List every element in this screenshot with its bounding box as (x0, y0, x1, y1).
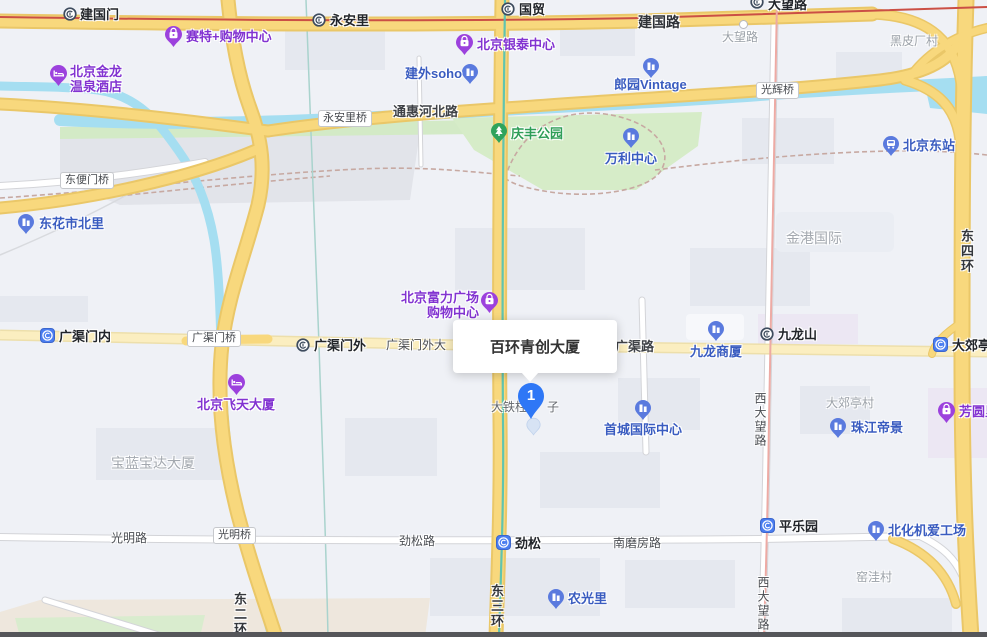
poi-jiulongshangsha[interactable]: 九龙商厦 (690, 344, 742, 359)
marker-number: 1 (515, 387, 547, 404)
result-tooltip[interactable]: 百环青创大厦 (453, 320, 617, 373)
poi-shoucheng[interactable]: 首城国际中心 (604, 422, 682, 437)
poi-beijingdong[interactable]: 北京东站 (903, 138, 955, 153)
area-heipichangcun: 黑皮厂村 (890, 34, 938, 49)
road-guangqumenwai-st: 广渠门外大 (386, 338, 446, 353)
station-dajiaoting[interactable]: 大郊亭 (952, 338, 987, 353)
bridge-guangmingqiao: 光明桥 (213, 527, 256, 544)
metro-logo-icon[interactable] (501, 2, 515, 21)
tooltip-arrow (521, 372, 539, 382)
shopping-pin-icon[interactable] (937, 401, 956, 429)
park-pin-icon[interactable] (490, 122, 508, 149)
road-xidawanglu-lower: 西大望路 (755, 576, 770, 632)
shopping-pin-icon[interactable] (455, 33, 474, 61)
metro-logo-icon[interactable] (760, 327, 774, 346)
poi-beihuaji[interactable]: 北化机爱工场 (888, 523, 966, 538)
poi-jinlong-line1[interactable]: 北京金龙 (70, 64, 122, 79)
map-canvas[interactable]: 建国门 永安里 国贸 大望路 广渠门外 九龙山 广渠门内 劲松 平乐园 大郊亭 … (0, 0, 987, 637)
metro-logo-icon[interactable] (63, 7, 77, 26)
tooltip-title: 百环青创大厦 (490, 336, 580, 357)
area-dawanglu-road: 大望路 (722, 30, 758, 45)
building-pin-icon[interactable] (829, 417, 847, 444)
metro-square-icon[interactable] (933, 337, 948, 357)
poi-qingfeng[interactable]: 庆丰公园 (511, 126, 563, 141)
shopping-pin-icon[interactable] (164, 25, 183, 53)
station-jiulongshan[interactable]: 九龙山 (778, 327, 817, 342)
road-dongerhuan: 东二环 (232, 592, 247, 637)
poi-feitian[interactable]: 北京飞天大厦 (197, 397, 275, 412)
station-guangqumennei[interactable]: 广渠门内 (59, 329, 111, 344)
shopping-pin-icon[interactable] (480, 291, 499, 319)
station-jianguomen[interactable]: 建国门 (80, 7, 119, 22)
poi-zhujiang[interactable]: 珠江帝景 (851, 420, 903, 435)
poi-jianwaisoho[interactable]: 建外soho (405, 66, 462, 81)
road-dongsanhuan: 东三环 (489, 584, 504, 629)
metro-logo-icon[interactable] (750, 0, 764, 14)
building-pin-icon[interactable] (707, 320, 725, 347)
poi-yintai[interactable]: 北京银泰中心 (477, 37, 555, 52)
building-pin-icon[interactable] (461, 63, 479, 90)
area-dajiaotingcun: 大郊亭村 (826, 396, 874, 411)
road-jianguolu: 建国路 (638, 15, 680, 30)
metro-square-icon[interactable] (496, 535, 511, 555)
bridge-guanghuiqiao: 光辉桥 (756, 82, 799, 99)
station-jinsong[interactable]: 劲松 (515, 536, 541, 551)
road-dongsihuan: 东四环 (959, 229, 974, 274)
road-jinsonglu: 劲松路 (399, 534, 435, 549)
road-xidawanglu-upper: 西大望路 (752, 392, 767, 448)
building-pin-icon[interactable] (622, 127, 640, 154)
bridge-dongbianmenqiao: 东便门桥 (60, 172, 114, 189)
station-yonganli[interactable]: 永安里 (330, 13, 369, 28)
station-guomao[interactable]: 国贸 (519, 2, 545, 17)
road-guangqulu: 广渠路 (615, 339, 654, 354)
metro-logo-icon[interactable] (312, 13, 326, 32)
poi-nongguangli[interactable]: 农光里 (568, 591, 607, 606)
station-pingleyuan[interactable]: 平乐园 (779, 519, 818, 534)
station-dawanglu[interactable]: 大望路 (768, 0, 807, 12)
poi-jinlong-line2[interactable]: 温泉酒店 (70, 79, 122, 94)
hotel-pin-icon[interactable] (49, 64, 68, 92)
building-pin-icon[interactable] (867, 520, 885, 547)
poi-donghuashi[interactable]: 东花市北里 (39, 216, 104, 231)
area-jingang: 金港国际 (786, 231, 842, 246)
metro-square-icon[interactable] (760, 518, 775, 538)
poi-fangyuanli[interactable]: 芳圆里 (959, 404, 987, 419)
road-nanmofang: 南磨房路 (613, 536, 661, 551)
train-station-pin-icon[interactable] (882, 135, 900, 162)
building-pin-icon[interactable] (17, 213, 35, 240)
poi-fuli-line2[interactable]: 购物中心 (427, 305, 479, 320)
bridge-guangqumenqiao: 广渠门桥 (187, 330, 241, 347)
metro-logo-icon[interactable] (296, 338, 310, 357)
road-tonghui: 通惠河北路 (393, 104, 458, 119)
area-baolan: 宝蓝宝达大厦 (111, 456, 195, 471)
bottom-edge-bar (0, 632, 987, 637)
building-pin-icon[interactable] (547, 588, 565, 615)
bridge-yonganliqiao: 永安里桥 (318, 110, 372, 127)
result-marker-1[interactable]: 1 (515, 381, 547, 421)
poi-langyuan[interactable]: 郎园Vintage (614, 77, 687, 92)
poi-wanli[interactable]: 万利中心 (605, 151, 657, 166)
road-guangming: 光明路 (111, 531, 147, 546)
area-datiezhu-tail: 子 (547, 400, 559, 415)
metro-square-icon[interactable] (40, 328, 55, 348)
area-yaowacun: 窑洼村 (856, 570, 892, 585)
poi-fuli-line1[interactable]: 北京富力广场 (401, 290, 479, 305)
station-guangqumenwai[interactable]: 广渠门外 (314, 338, 366, 353)
poi-saite[interactable]: 赛特+购物中心 (186, 29, 272, 44)
road-dot-icon (739, 20, 748, 29)
